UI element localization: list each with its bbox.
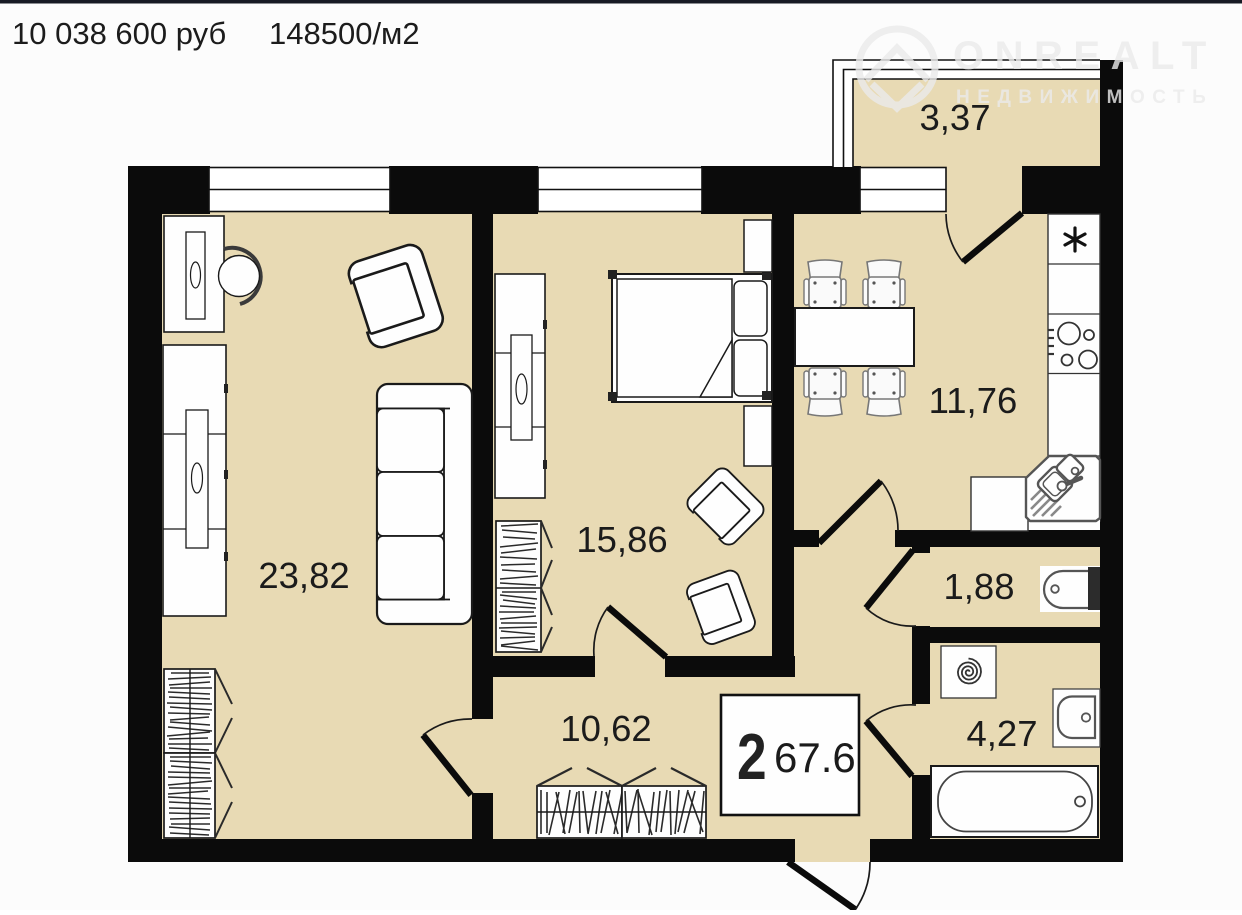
svg-text:ONREALT: ONREALT (953, 34, 1217, 78)
svg-text:2: 2 (737, 720, 767, 793)
svg-text:23,82: 23,82 (258, 555, 349, 596)
svg-text:1,88: 1,88 (943, 566, 1014, 607)
svg-text:НЕДВИЖИМОСТЬ: НЕДВИЖИМОСТЬ (956, 87, 1213, 108)
svg-text:10 038 600 руб: 10 038 600 руб (12, 16, 226, 51)
svg-text:11,76: 11,76 (929, 380, 1018, 421)
svg-text:67.6: 67.6 (774, 734, 856, 781)
svg-text:148500/м2: 148500/м2 (269, 16, 420, 51)
svg-text:15,86: 15,86 (576, 519, 667, 560)
svg-text:10,62: 10,62 (560, 708, 651, 749)
svg-text:4,27: 4,27 (966, 713, 1037, 754)
